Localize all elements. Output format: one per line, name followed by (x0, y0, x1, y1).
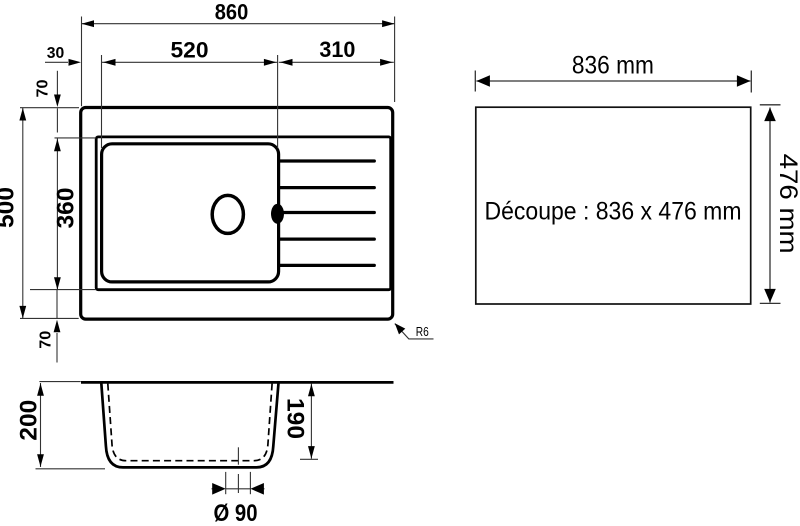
svg-text:360: 360 (53, 188, 80, 229)
svg-text:Découpe : 836 x 476 mm: Découpe : 836 x 476 mm (485, 197, 742, 225)
svg-text:30: 30 (47, 45, 65, 62)
svg-text:476 mm: 476 mm (774, 154, 800, 254)
svg-text:70: 70 (35, 79, 52, 97)
svg-text:500: 500 (0, 187, 20, 228)
svg-text:836 mm: 836 mm (572, 52, 654, 80)
svg-text:Ø 90: Ø 90 (214, 500, 258, 526)
svg-text:200: 200 (16, 400, 43, 441)
svg-text:70: 70 (38, 331, 55, 349)
svg-text:R6: R6 (416, 325, 429, 339)
svg-text:520: 520 (171, 38, 209, 63)
svg-text:310: 310 (319, 37, 355, 62)
svg-text:190: 190 (282, 398, 309, 439)
svg-text:860: 860 (215, 0, 249, 24)
